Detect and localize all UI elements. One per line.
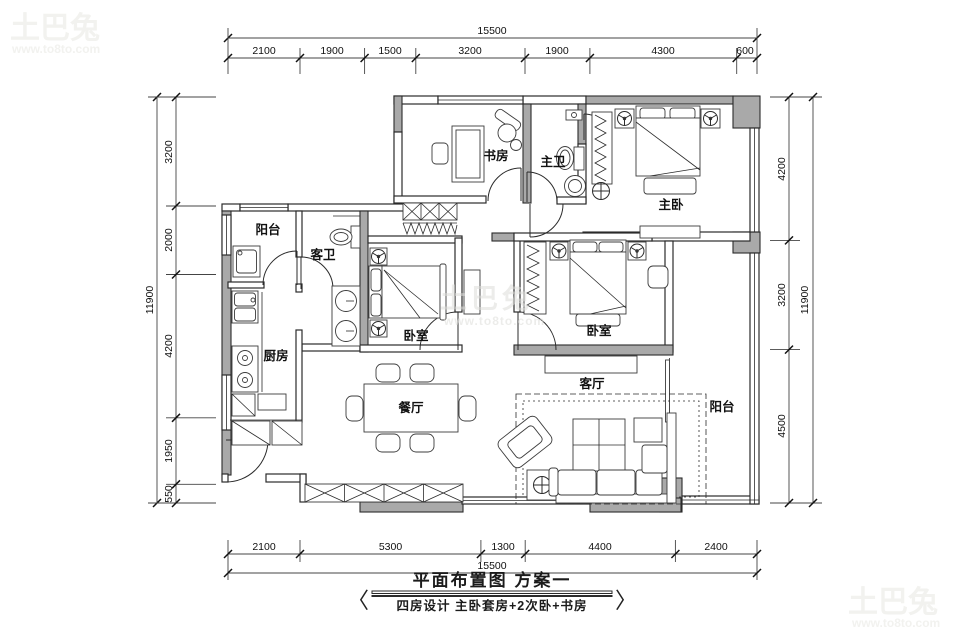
room-label-study: 书房 <box>483 148 508 163</box>
furniture-study <box>432 108 522 182</box>
room-label-balcony-nw: 阳台 <box>255 222 280 237</box>
dim-left-seg-4: 550 <box>163 485 175 503</box>
balcony-nw-door <box>263 251 297 285</box>
dim-top-seg-2: 1500 <box>378 45 402 57</box>
entry-cabinet <box>305 484 463 502</box>
window-balcony-se-right <box>750 253 759 504</box>
hall-closet <box>403 203 457 234</box>
watermark-brand: 土巴兔 <box>440 284 533 314</box>
dim-bottom-seg-3: 4400 <box>588 541 612 553</box>
dim-top-seg-0: 2100 <box>252 45 276 57</box>
dimensions-left: 11900 3200 2000 4200 1950 550 <box>144 93 216 507</box>
furniture-guest-bath <box>330 216 360 346</box>
floorplan-canvas: 土巴兔 www.to8to.com 土巴兔 www.to8to.com <box>0 0 960 640</box>
dim-bottom-seg-1: 5300 <box>379 541 403 553</box>
plan-subtitle: 四房设计 主卧套房+2次卧+书房 <box>396 598 587 613</box>
window-left-2 <box>222 375 231 430</box>
watermark-bottom-right: 土巴兔 www.to8to.com <box>848 586 940 630</box>
dim-right-seg-2: 4500 <box>776 414 788 438</box>
dim-left-seg-3: 1950 <box>163 439 175 463</box>
room-label-bedroom-right: 卧室 <box>586 323 612 338</box>
dimensions-top: 15500 2100 1900 1500 3200 1900 4300 600 <box>224 25 761 74</box>
watermark-url: www.to8to.com <box>11 42 100 56</box>
window-balcony-nw <box>240 204 288 211</box>
room-label-master-bath: 主卫 <box>540 154 566 169</box>
window-left-1 <box>222 215 231 255</box>
bracket-left: 〈 <box>347 588 369 613</box>
room-label-guest-bath: 客卫 <box>309 247 336 262</box>
title-block: 平面布置图 方案一 〈 四房设计 主卧套房+2次卧+书房 〉 <box>347 570 637 613</box>
plan-title: 平面布置图 方案一 <box>413 570 572 590</box>
watermark-url: www.to8to.com <box>851 616 940 630</box>
watermark-brand: 土巴兔 <box>10 12 100 45</box>
watermark-top-left: 土巴兔 www.to8to.com <box>10 12 100 56</box>
room-label-balcony-se: 阳台 <box>709 399 734 414</box>
dim-bottom-seg-0: 2100 <box>252 541 276 553</box>
dim-top-seg-1: 1900 <box>320 45 344 57</box>
study-door <box>488 168 521 201</box>
room-label-bedroom-left: 卧室 <box>403 328 429 343</box>
dim-right-seg-1: 3200 <box>776 283 788 307</box>
dim-left-seg-2: 4200 <box>163 334 175 358</box>
entry-door <box>226 440 268 482</box>
dim-bottom-seg-2: 1300 <box>491 541 515 553</box>
dim-top-total: 15500 <box>477 25 506 37</box>
furniture-master-bedroom <box>592 106 720 238</box>
dim-right-total: 11900 <box>799 286 811 315</box>
dim-right-seg-0: 4200 <box>776 157 788 181</box>
room-label-master-bedroom: 主卧 <box>658 197 684 212</box>
dim-left-seg-1: 2000 <box>163 228 175 252</box>
dim-top-seg-5: 4300 <box>651 45 675 57</box>
dimensions-right: 4200 3200 4500 11900 <box>770 93 822 507</box>
floorplan-drawing: 土巴兔 www.to8to.com 土巴兔 www.to8to.com <box>0 0 960 640</box>
dim-left-seg-0: 3200 <box>163 140 175 164</box>
window-study-top <box>438 96 523 104</box>
furniture-kitchen <box>230 291 302 445</box>
dim-top-seg-3: 3200 <box>458 45 482 57</box>
dim-left-total: 11900 <box>144 286 156 315</box>
room-label-kitchen: 厨房 <box>263 348 288 363</box>
dim-top-seg-6: 600 <box>736 45 754 57</box>
bracket-right: 〉 <box>615 588 637 613</box>
watermark-center: 土巴兔 www.to8to.com <box>440 284 545 328</box>
furniture-bedroom-right <box>524 240 668 326</box>
watermark-url: www.to8to.com <box>443 314 545 328</box>
furniture-balcony-nw <box>233 246 260 277</box>
master-suite-door <box>530 204 563 237</box>
watermark-brand: 土巴兔 <box>848 586 938 619</box>
room-label-living: 客厅 <box>578 376 605 391</box>
room-label-dining: 餐厅 <box>397 400 424 415</box>
window-master-right <box>750 128 759 232</box>
dim-bottom-seg-4: 2400 <box>704 541 728 553</box>
dim-top-seg-4: 1900 <box>545 45 569 57</box>
